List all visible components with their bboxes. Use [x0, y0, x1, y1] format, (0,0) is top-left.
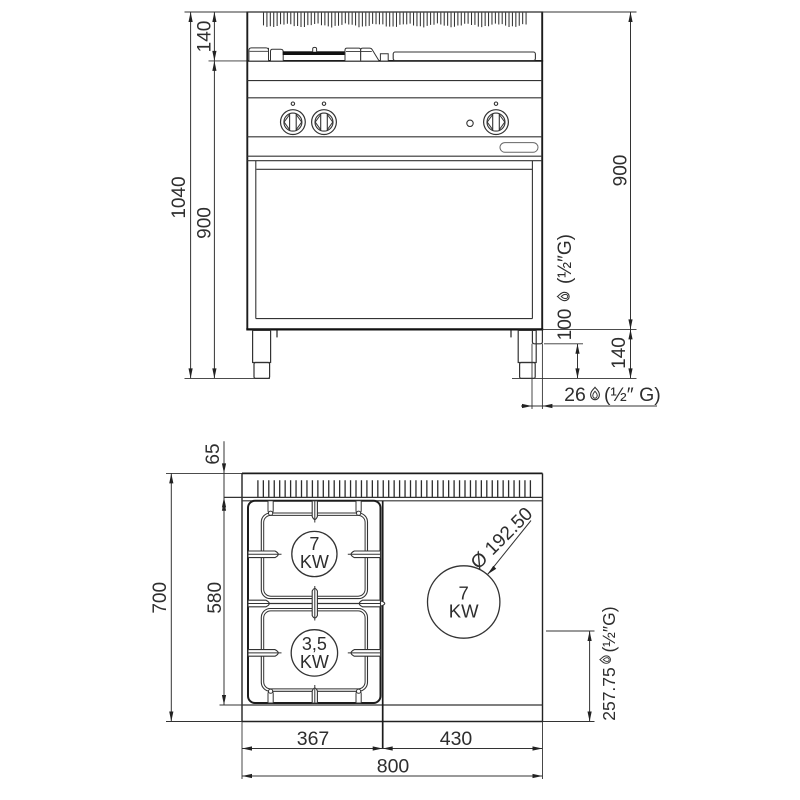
svg-text:580: 580 [205, 582, 226, 614]
svg-text:3,5: 3,5 [302, 634, 327, 654]
svg-text:430: 430 [440, 728, 473, 750]
svg-text:26: 26 [564, 384, 586, 406]
svg-text:(½″ G): (½″ G) [604, 384, 661, 406]
svg-text:KW: KW [449, 601, 479, 622]
svg-text:367: 367 [297, 728, 330, 750]
svg-text:(½″G): (½″G) [555, 234, 576, 284]
svg-text:257.75: 257.75 [599, 667, 619, 721]
svg-text:65: 65 [203, 443, 224, 464]
svg-text:800: 800 [377, 756, 410, 778]
svg-text:KW: KW [300, 552, 329, 572]
svg-text:140: 140 [609, 337, 630, 369]
svg-text:700: 700 [150, 582, 171, 614]
svg-text:1040: 1040 [169, 176, 190, 218]
svg-text:900: 900 [195, 207, 216, 239]
svg-text:900: 900 [611, 155, 632, 187]
svg-text:100: 100 [555, 309, 576, 341]
svg-text:7: 7 [309, 534, 319, 554]
svg-text:140: 140 [195, 21, 216, 53]
svg-text:(½″G): (½″G) [599, 606, 619, 652]
svg-text:KW: KW [300, 652, 329, 672]
